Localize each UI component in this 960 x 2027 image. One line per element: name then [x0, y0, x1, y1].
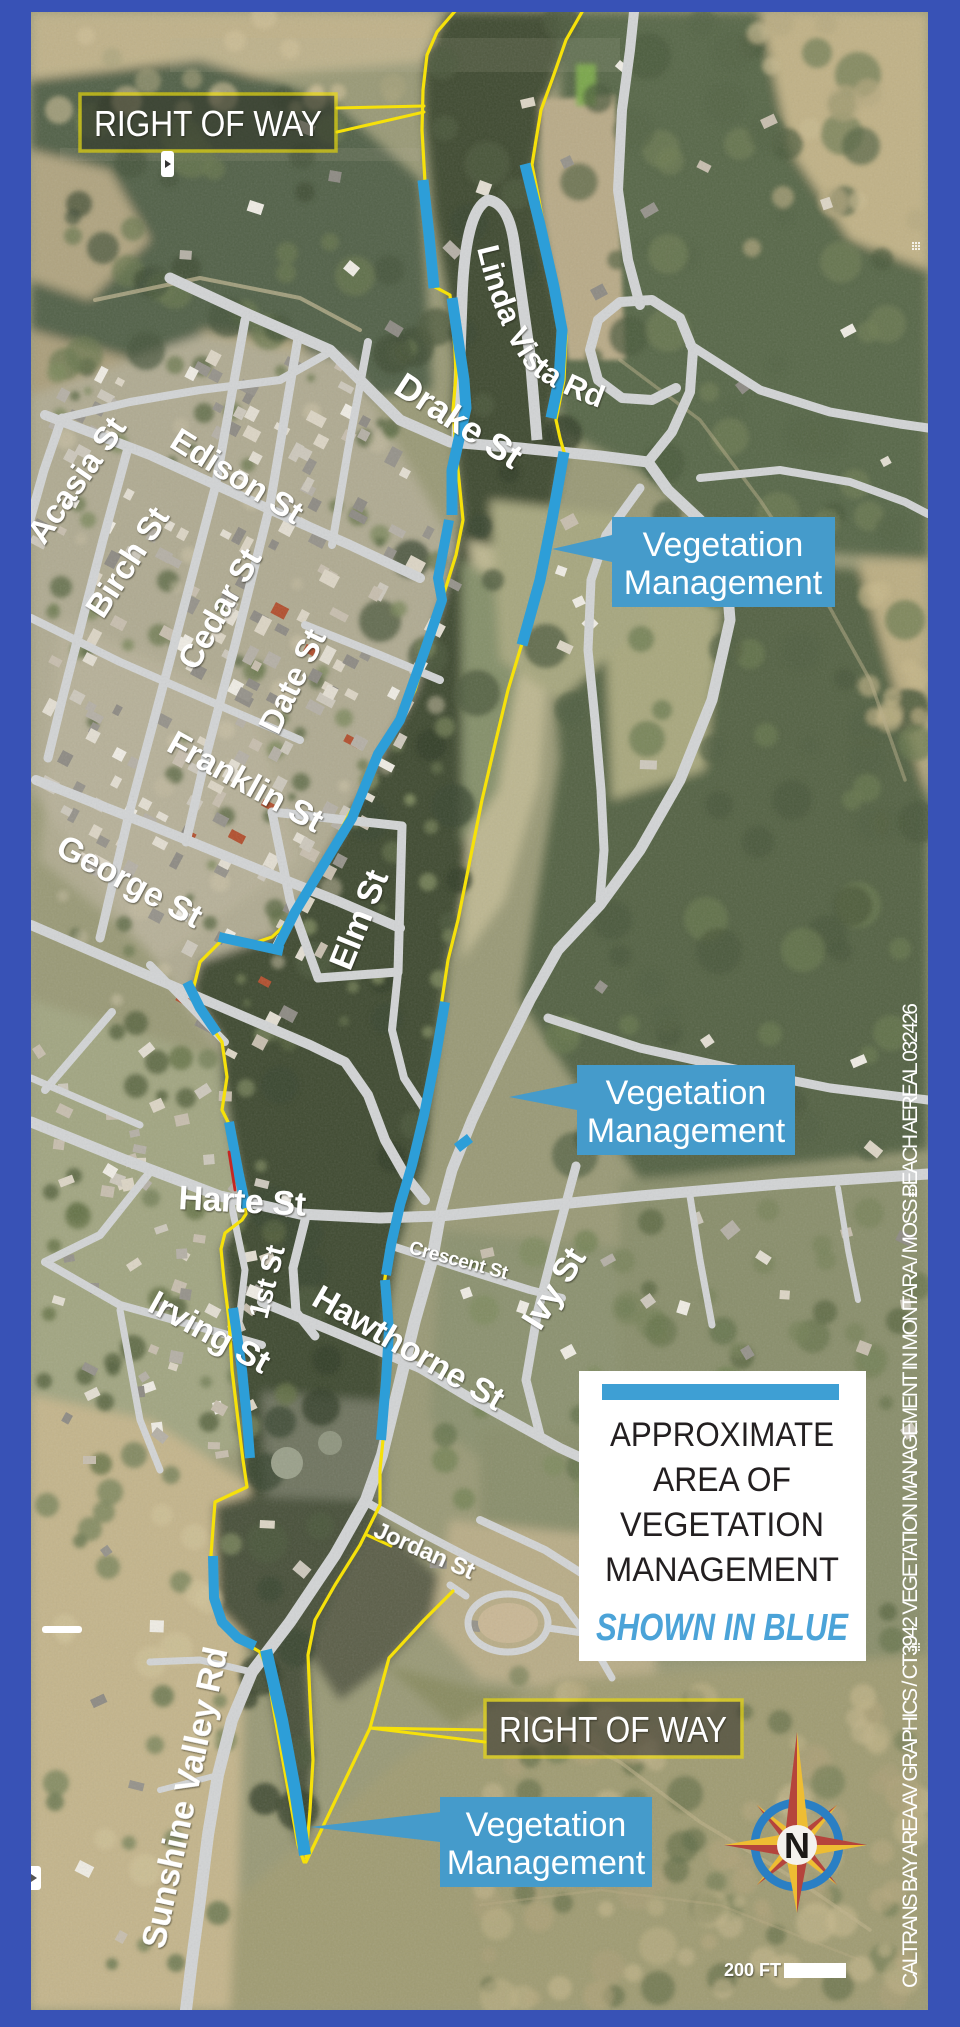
- svg-text:Management: Management: [624, 564, 823, 602]
- svg-text:Vegetation: Vegetation: [606, 1074, 767, 1112]
- svg-text:Vegetation: Vegetation: [643, 526, 804, 564]
- svg-text:Management: Management: [587, 1112, 786, 1150]
- svg-text:MANAGEMENT: MANAGEMENT: [605, 1551, 839, 1589]
- svg-text:Management: Management: [447, 1844, 646, 1882]
- svg-text:Harte St: Harte St: [178, 1179, 307, 1224]
- svg-text:N: N: [784, 1825, 810, 1866]
- svg-text:SHOWN IN BLUE: SHOWN IN BLUE: [596, 1607, 849, 1649]
- svg-text:RIGHT OF WAY: RIGHT OF WAY: [499, 1709, 727, 1750]
- svg-text:AREA OF: AREA OF: [653, 1461, 791, 1499]
- svg-text:APPROXIMATE: APPROXIMATE: [610, 1416, 834, 1454]
- svg-text:VEGETATION: VEGETATION: [620, 1506, 824, 1544]
- svg-text:Vegetation: Vegetation: [466, 1806, 627, 1844]
- svg-text:RIGHT OF WAY: RIGHT OF WAY: [94, 103, 322, 144]
- svg-text:200 FT: 200 FT: [724, 1960, 781, 1980]
- svg-text:CALTRANS BAY AREA AV GRAPHICS: CALTRANS BAY AREA AV GRAPHICS / CT3942 V…: [899, 1003, 922, 1988]
